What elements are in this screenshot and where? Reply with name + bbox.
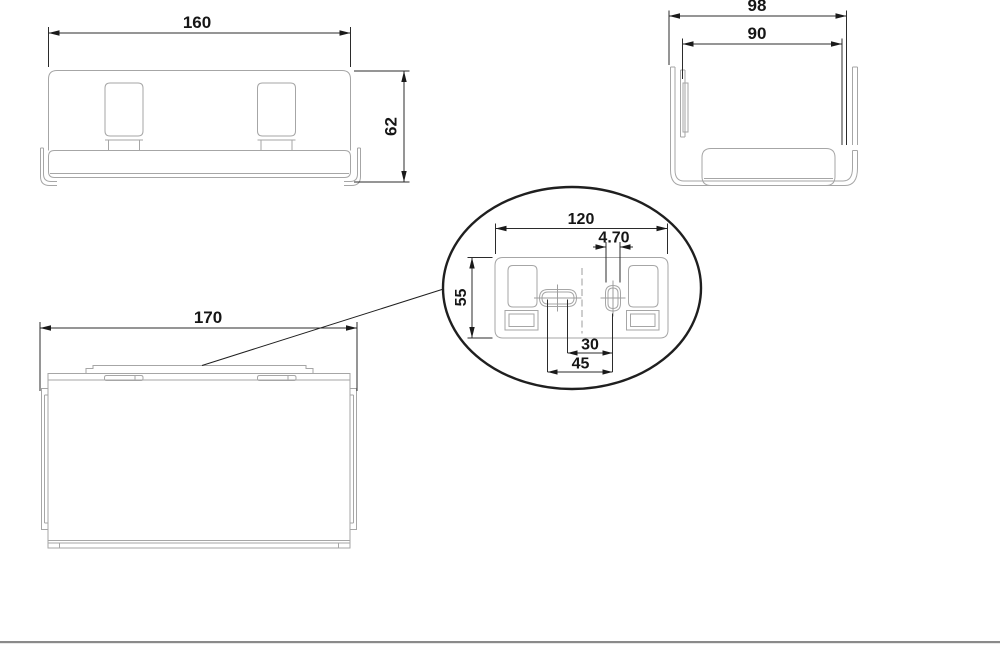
detail-dimension-arrows <box>469 226 667 375</box>
detail-view: 120 4.70 55 30 45 <box>202 187 701 389</box>
detail-slot-offset-30-label: 30 <box>581 337 599 354</box>
drawing-sheet: 160 62 98 90 170 120 4.70 55 30 45 <box>0 0 1000 647</box>
side-inner-width-dimension-label: 90 <box>748 24 767 43</box>
front-height-dimension-label: 62 <box>382 117 401 136</box>
side-outer-width-dimension-label: 98 <box>748 0 767 15</box>
front-view-body-outline <box>41 71 361 186</box>
top-view-dimension-lines <box>40 322 357 391</box>
side-view: 98 90 <box>669 0 858 186</box>
technical-drawing: 160 62 98 90 170 120 4.70 55 30 45 <box>0 0 1000 647</box>
detail-slot-offset-45-label: 45 <box>572 356 590 373</box>
front-width-dimension-label: 160 <box>183 13 211 32</box>
top-view: 170 <box>40 308 357 548</box>
detail-plate-height-dimension-label: 55 <box>453 289 470 307</box>
detail-plate-width-dimension-label: 120 <box>568 211 595 228</box>
sheet-bottom-rule <box>0 641 1000 643</box>
top-view-body-outline <box>42 366 357 549</box>
side-view-body-outline <box>671 67 858 186</box>
front-view-dimension-arrows <box>49 30 407 182</box>
detail-slot-width-dimension-label: 4.70 <box>598 230 629 247</box>
top-width-dimension-label: 170 <box>194 308 222 327</box>
detail-leader-line <box>202 289 444 366</box>
front-view: 160 62 <box>41 13 410 186</box>
front-view-dimension-lines <box>49 27 410 182</box>
